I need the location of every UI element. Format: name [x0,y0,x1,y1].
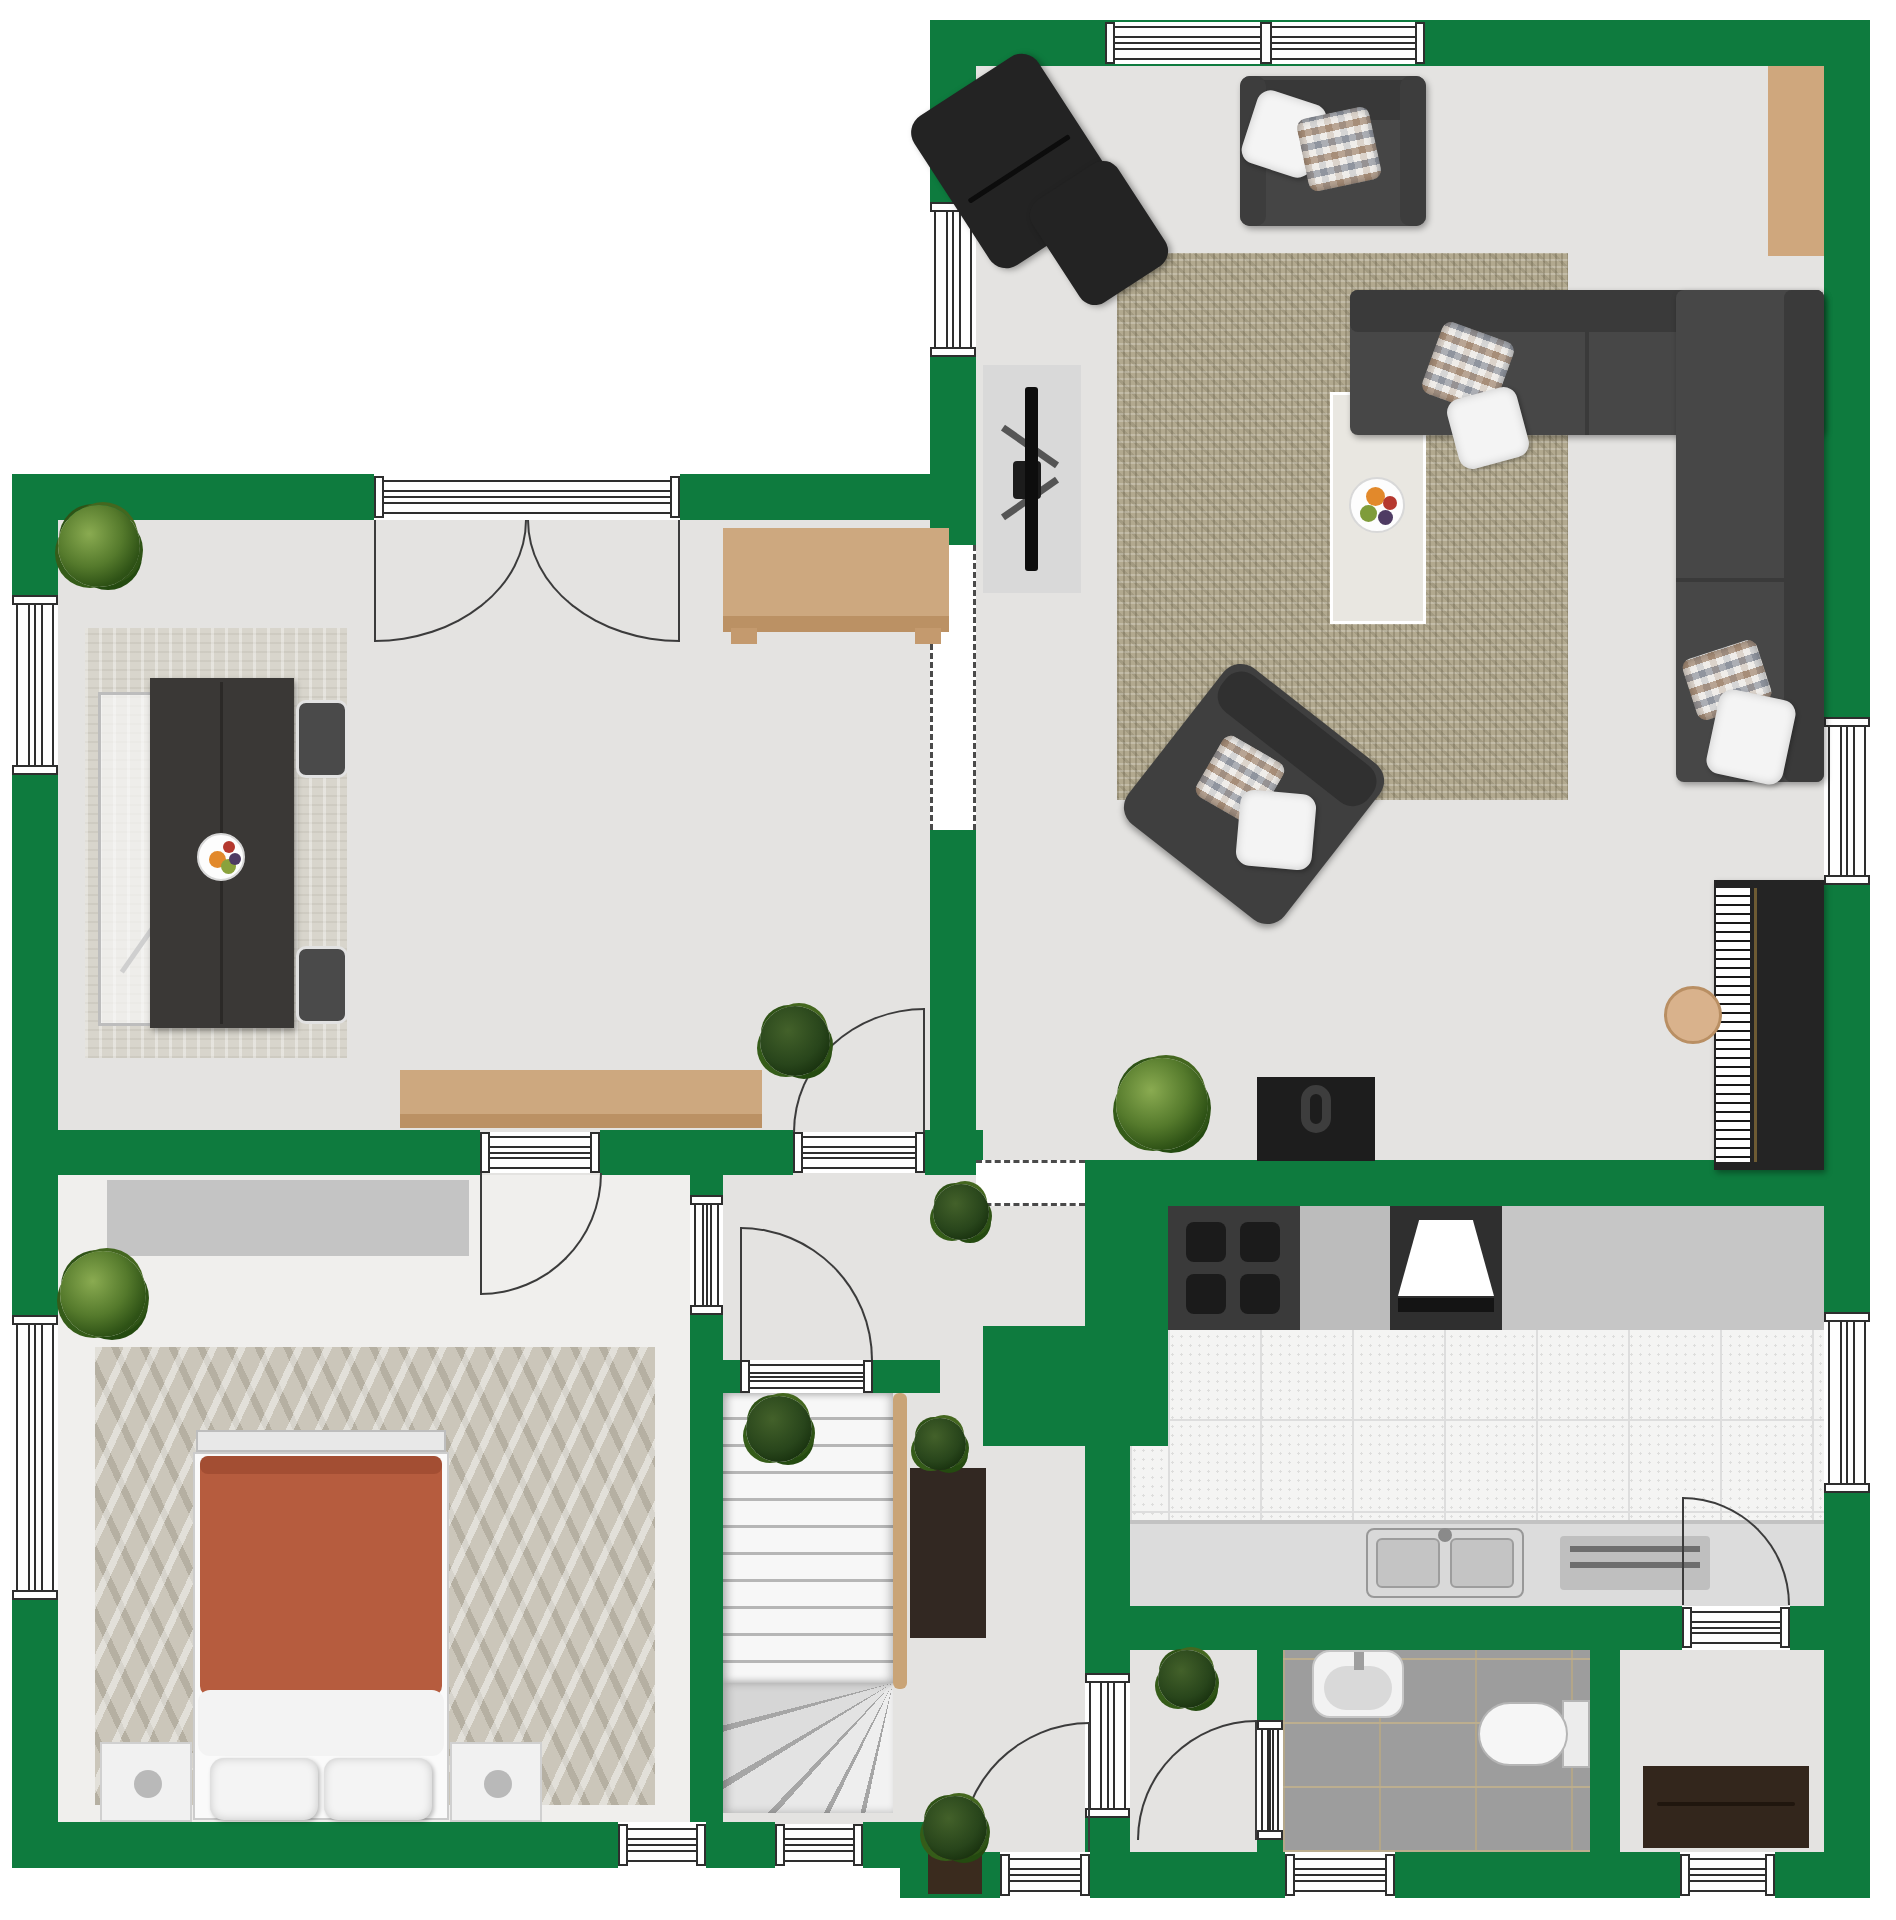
wall-stairdoor-b [873,1360,940,1393]
duvet-fold [200,1456,442,1474]
plant-junction [933,1184,989,1240]
fruit-red [1383,496,1397,510]
window-bottom-bath-cap [1285,1854,1295,1896]
window-bottom-storage [1680,1854,1775,1896]
hall-door-threshold-glass [797,1136,921,1169]
wall-bedroom-hall-a [690,1175,723,1195]
wall-kitchen-corner-b [983,1326,1168,1446]
plant-dining [58,505,140,587]
kitchen-sink [1366,1528,1524,1598]
nightstand-knob [484,1770,512,1798]
french-door-threshold-glass [378,480,676,514]
dining-chair [296,700,348,778]
window-bottom-storage-glass [1684,1858,1771,1892]
piano [1714,880,1824,1170]
plant-anteroom [1158,1650,1216,1708]
window-kitchen-right-cap [1824,1312,1870,1322]
wall-mid-divider-c [925,1130,983,1175]
glass-panel-hall-anteroom-glass [1089,1677,1126,1814]
bedroom-wardrobe [107,1180,469,1256]
bed-shelf [196,1430,446,1452]
window-top-cap [1105,22,1115,64]
fruit-purple [229,853,241,865]
burner [1240,1222,1280,1262]
bench-grain [1657,1802,1795,1806]
stove-handle [1301,1085,1331,1133]
bath-door-threshold-glass [1261,1724,1279,1836]
fruit-purple [1378,510,1393,525]
kitchen-hood-unit [1390,1206,1502,1330]
sink-bowl [1324,1666,1392,1710]
wall-bottom-right-c [1395,1852,1680,1898]
window-bottom-bath [1285,1854,1395,1896]
fruit-red [223,841,235,853]
cushion-seam [1585,332,1589,435]
wall-dining-top-b [680,474,930,520]
plant-console [914,1418,966,1470]
plant-living [1116,1058,1208,1150]
window-bottom-stair-b [775,1824,863,1866]
sink-basin-left [1376,1538,1440,1588]
bed-pillow [324,1758,432,1820]
piano-keys [1716,888,1750,1162]
wall-hall-anteroom-a [1085,1446,1130,1673]
tv-panel [983,365,1081,593]
desk-tab [825,520,847,530]
tv-screen [1025,387,1038,571]
stove-line [1570,1562,1700,1568]
dining-chair [296,946,348,1024]
storage-door-threshold-glass [1686,1611,1786,1644]
bath-sink [1312,1650,1404,1718]
burner [1186,1274,1226,1314]
french-door-threshold [374,476,680,518]
console-knob [980,1474,990,1484]
bath-door-threshold [1257,1720,1283,1840]
window-bottom-stair-a-glass [622,1828,702,1862]
kitchen-counter-cooktop [1168,1206,1300,1330]
window-top [1105,22,1425,64]
bedroom-door-threshold [480,1132,600,1173]
window-kitchen-right [1824,1312,1870,1493]
glass-panel-bedroom-hall [690,1195,723,1315]
glass-panel-hall-anteroom-cap [1085,1808,1130,1818]
bed-duvet [200,1456,442,1696]
nightstand [100,1742,192,1822]
kitchen-counter-mid [1300,1206,1390,1330]
window-mullion [1260,22,1272,64]
glass-panel-bedroom-hall-cap [690,1305,723,1315]
wall-bottom-left-a [12,1822,618,1868]
fruit-bowl [197,833,245,881]
window-bedroom-left-cap [12,1315,58,1325]
dining-desk [723,528,949,632]
wall-bottom-right-b [1090,1852,1285,1898]
wall-right [1824,20,1870,1898]
bath-door-threshold-cap [1257,1830,1283,1840]
wall-dining-living-b [930,830,976,1175]
bed-sheet [198,1690,444,1756]
staircase-winder [723,1683,893,1813]
console-knob [980,1622,990,1632]
fruit-bowl [1349,477,1405,533]
wall-anteroom-bath-b [1257,1840,1283,1852]
plant-hall [760,1006,830,1076]
cooker-hood [1398,1220,1494,1296]
storage-door-threshold-cap [1780,1607,1790,1648]
window-kitchen-right-cap [1824,1483,1870,1493]
wood-mat-top-right [1768,66,1824,256]
piano-stool [1664,986,1722,1044]
front-door-threshold [1000,1854,1090,1896]
hood-bar [1398,1298,1494,1312]
wall-bottom-right-d [1775,1852,1870,1898]
console-knob [906,1622,916,1632]
bedroom-door-threshold-cap [590,1132,600,1173]
window-bedroom-left-glass [16,1319,54,1596]
bench-knob [1649,1760,1661,1770]
window-bottom-stair-a-cap [696,1824,706,1866]
sink-faucet [1438,1528,1452,1542]
front-door-threshold-cap [1000,1854,1010,1896]
glass-panel-bedroom-hall-cap [690,1195,723,1205]
piano-lid-line [1754,888,1757,1162]
wall-bath-storage [1590,1650,1620,1852]
wall-kitchen-bottom-a [1130,1605,1682,1650]
wall-stairdoor-a [723,1360,740,1393]
storage-bench [1643,1766,1809,1848]
wall-mid-divider-a [58,1130,480,1175]
window-bottom-stair-a [618,1824,706,1866]
staircase-handrail [893,1393,907,1689]
wall-anteroom-bath-a [1257,1650,1283,1720]
window-bottom-stair-b-cap [775,1824,785,1866]
desk-foot [731,628,757,644]
stair-door-threshold-glass [744,1364,869,1389]
desk-foot [915,628,941,644]
dining-sideboard [400,1070,762,1128]
hall-door-threshold-cap [915,1132,925,1173]
burner [1240,1274,1280,1314]
sink-faucet [1354,1652,1364,1670]
window-dining-left-cap [12,765,58,775]
window-bottom-bath-glass [1289,1858,1391,1892]
window-living-right-cap [1824,875,1870,885]
plant-entry [923,1796,987,1860]
glass-panel-bedroom-hall-glass [694,1199,719,1311]
glass-panel-hall-anteroom [1085,1673,1130,1818]
window-dining-left-cap [12,595,58,605]
window-bottom-storage-cap [1680,1854,1690,1896]
storage-door-threshold-cap [1682,1607,1692,1648]
fruit-green [1360,505,1377,522]
cushion-seam [1676,578,1784,582]
sink-basin-right [1450,1538,1514,1588]
window-living-left-glass [934,206,972,353]
toilet [1478,1698,1592,1770]
window-dining-left [12,595,58,775]
window-living-left-cap [930,347,976,357]
toilet-bowl [1478,1702,1568,1766]
nightstand [450,1742,542,1822]
hall-door-threshold [793,1132,925,1173]
plant-stairs [746,1396,812,1462]
pillow-plaid [1295,105,1383,193]
window-bottom-storage-cap [1765,1854,1775,1896]
window-living-right-glass [1828,721,1866,881]
console-knob [906,1474,916,1484]
fireplace-stove [1257,1077,1375,1161]
bench-knob [1791,1760,1803,1770]
bench-knob [1791,1844,1803,1854]
storage-door-threshold [1682,1607,1790,1648]
wall-bedroom-hall-b [690,1315,723,1822]
bath-door-threshold-cap [1257,1720,1283,1730]
window-bottom-stair-b-cap [853,1824,863,1866]
stair-door-threshold-cap [740,1360,750,1393]
window-living-right-cap [1824,717,1870,727]
window-kitchen-right-glass [1828,1316,1866,1489]
wall-dining-top-a [12,474,374,520]
sideboard-edge [400,1114,762,1128]
stair-door-threshold-cap [863,1360,873,1393]
dining-bench [98,692,154,1026]
bench-knob [1649,1844,1661,1854]
passage-living-hall-dashed [976,1160,1085,1206]
sofa-arm-right [1400,76,1426,226]
french-door-threshold-cap [374,476,384,518]
wall-bottom-left-b [706,1822,775,1868]
pillow-white [1235,789,1317,871]
window-bedroom-left [12,1315,58,1600]
hall-console-table [910,1468,986,1638]
wall-hall-anteroom-b [1085,1818,1130,1852]
window-bottom-stair-b-glass [779,1828,859,1862]
french-door-threshold-cap [670,476,680,518]
stove-line [1570,1546,1700,1552]
window-bottom-bath-cap [1385,1854,1395,1896]
front-door-threshold-glass [1004,1858,1086,1892]
plant-bedroom [60,1251,146,1337]
window-living-right [1824,717,1870,885]
wall-kitchen-bottom-b [1790,1605,1824,1650]
window-dining-left-glass [16,599,54,771]
glass-panel-hall-anteroom-cap [1085,1673,1130,1683]
front-door-threshold-cap [1080,1854,1090,1896]
window-bottom-stair-a-cap [618,1824,628,1866]
kitchen-counter-right [1502,1206,1824,1330]
window-top-cap [1415,22,1425,64]
bedroom-door-threshold-glass [484,1136,596,1169]
wall-mid-divider-b [600,1130,793,1175]
hall-door-threshold-cap [793,1132,803,1173]
stair-door-threshold [740,1360,873,1393]
bed-pillow [210,1758,318,1820]
nightstand-knob [134,1770,162,1798]
bedroom-door-threshold-cap [480,1132,490,1173]
floor-plan-canvas [0,0,1896,1920]
window-bedroom-left-cap [12,1590,58,1600]
burner [1186,1222,1226,1262]
